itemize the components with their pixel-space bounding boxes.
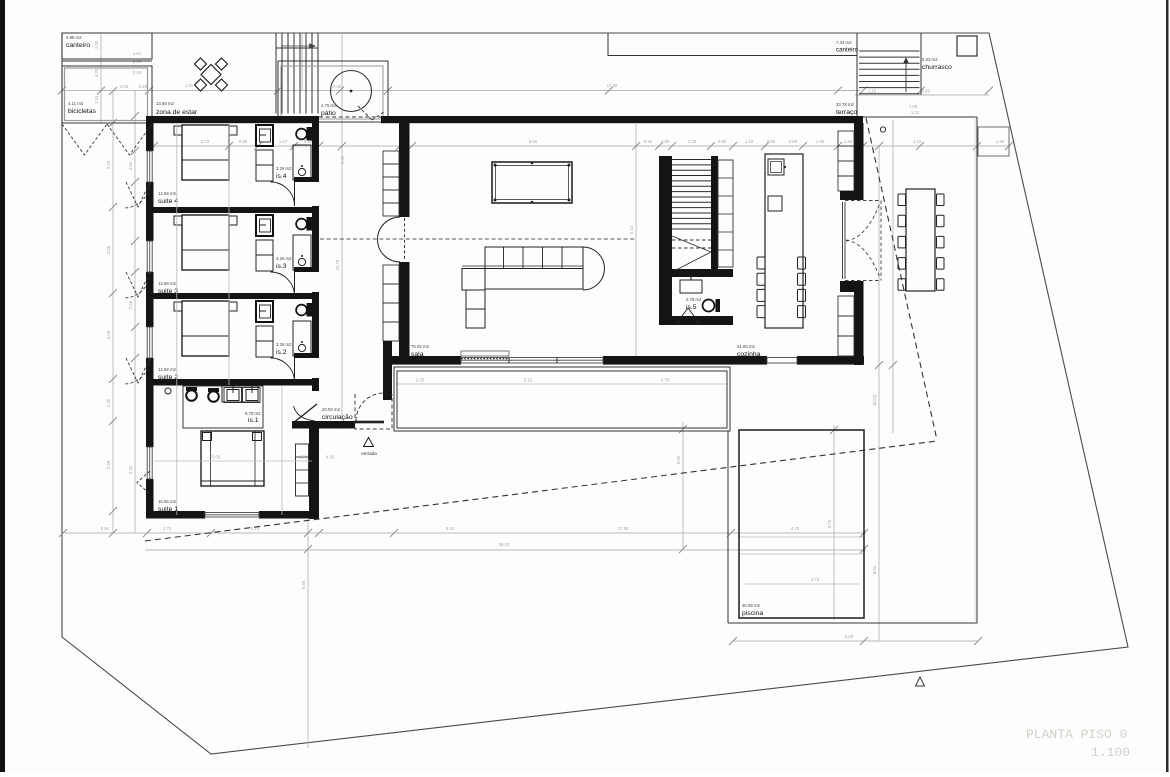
svg-text:2.05: 2.05 — [416, 378, 425, 383]
svg-text:is.2: is.2 — [276, 349, 287, 356]
svg-text:8.65: 8.65 — [529, 139, 538, 144]
svg-text:0.50: 0.50 — [299, 455, 308, 460]
svg-text:2.31: 2.31 — [340, 155, 345, 164]
svg-text:3.05: 3.05 — [106, 330, 111, 339]
svg-text:20.03 m2: 20.03 m2 — [322, 407, 341, 412]
svg-text:2.28: 2.28 — [106, 460, 111, 469]
svg-text:1.100: 1.100 — [1091, 745, 1130, 760]
svg-text:2.95: 2.95 — [128, 300, 133, 309]
svg-text:0.20: 0.20 — [139, 84, 148, 89]
svg-text:4.70: 4.70 — [661, 378, 670, 383]
svg-text:3.26 m2: 3.26 m2 — [276, 342, 292, 347]
svg-text:1.61: 1.61 — [133, 51, 142, 56]
svg-text:(8.04): (8.04) — [872, 394, 877, 406]
svg-text:8.75: 8.75 — [827, 519, 832, 528]
svg-text:2.72: 2.72 — [201, 139, 210, 144]
svg-text:3.30: 3.30 — [688, 139, 697, 144]
svg-text:0.42: 0.42 — [629, 225, 634, 234]
svg-text:75.02 m2: 75.02 m2 — [411, 344, 430, 349]
svg-text:0.60: 0.60 — [718, 139, 727, 144]
svg-text:sala: sala — [411, 351, 424, 358]
svg-text:1.20: 1.20 — [844, 139, 853, 144]
svg-text:suite 4: suite 4 — [158, 198, 178, 205]
svg-text:35.23: 35.23 — [499, 542, 510, 547]
svg-text:4.65: 4.65 — [128, 161, 133, 170]
svg-text:1.23: 1.23 — [868, 89, 877, 94]
svg-text:is.5: is.5 — [686, 304, 697, 311]
svg-text:13.55 m2: 13.55 m2 — [156, 101, 175, 106]
svg-text:1.30: 1.30 — [996, 139, 1005, 144]
svg-text:1.10: 1.10 — [745, 139, 754, 144]
svg-text:cozinha: cozinha — [737, 351, 761, 358]
svg-text:4.70: 4.70 — [791, 526, 800, 531]
svg-text:5.10: 5.10 — [446, 526, 455, 531]
svg-text:is.1: is.1 — [248, 417, 259, 424]
svg-text:0.60: 0.60 — [789, 139, 798, 144]
svg-text:5.12: 5.12 — [524, 378, 533, 383]
svg-text:canteiro: canteiro — [66, 42, 90, 49]
svg-text:churrasco: churrasco — [922, 64, 952, 71]
svg-text:1.00: 1.00 — [94, 40, 99, 49]
svg-text:5.05: 5.05 — [212, 455, 221, 460]
svg-text:2.83: 2.83 — [922, 89, 931, 94]
svg-text:3.20: 3.20 — [106, 160, 111, 169]
svg-text:PLANTA PISO 0: PLANTA PISO 0 — [1026, 727, 1127, 742]
svg-text:12.59 m2: 12.59 m2 — [158, 367, 177, 372]
svg-text:is.3: is.3 — [276, 263, 287, 270]
svg-text:6.50: 6.50 — [301, 580, 306, 589]
svg-text:8.00: 8.00 — [845, 634, 854, 639]
svg-text:5.94: 5.94 — [101, 526, 110, 531]
svg-text:31.80 m2: 31.80 m2 — [737, 344, 756, 349]
svg-text:0.35: 0.35 — [333, 84, 342, 89]
svg-text:3.05: 3.05 — [120, 84, 129, 89]
svg-text:2.70: 2.70 — [163, 526, 172, 531]
svg-text:30.69 m2: 30.69 m2 — [742, 603, 761, 608]
svg-text:1.47: 1.47 — [279, 139, 288, 144]
svg-text:0.45: 0.45 — [133, 70, 142, 75]
svg-text:4.30: 4.30 — [326, 455, 335, 460]
svg-text:3.26 m2: 3.26 m2 — [276, 256, 292, 261]
svg-text:bicicletas: bicicletas — [68, 108, 97, 115]
svg-text:1.90: 1.90 — [816, 139, 825, 144]
svg-text:1.30: 1.30 — [661, 139, 670, 144]
svg-text:pátio: pátio — [321, 110, 336, 117]
svg-text:3.26 m2: 3.26 m2 — [276, 166, 292, 171]
svg-text:17.00: 17.00 — [607, 83, 618, 88]
svg-text:8.04: 8.04 — [872, 565, 877, 574]
svg-text:8.79 m2: 8.79 m2 — [245, 411, 261, 416]
svg-text:suite 3: suite 3 — [158, 288, 178, 295]
svg-text:2.78 m2: 2.78 m2 — [686, 297, 702, 302]
svg-text:12.59 m2: 12.59 m2 — [158, 191, 177, 196]
svg-text:0.98: 0.98 — [239, 139, 248, 144]
svg-text:3.05: 3.05 — [106, 245, 111, 254]
svg-text:0.20: 0.20 — [644, 139, 653, 144]
svg-text:4.11 m2: 4.11 m2 — [68, 101, 84, 106]
svg-text:17.55: 17.55 — [618, 526, 629, 531]
svg-text:terraço: terraço — [836, 109, 857, 116]
svg-text:4.95 m2: 4.95 m2 — [66, 35, 82, 40]
svg-text:33.78 m2: 33.78 m2 — [836, 102, 855, 107]
svg-text:1.35: 1.35 — [106, 398, 111, 407]
svg-text:7.34 m2: 7.34 m2 — [836, 40, 852, 45]
svg-text:6.33 m2: 6.33 m2 — [922, 57, 938, 62]
svg-text:4.75 m2: 4.75 m2 — [321, 103, 337, 108]
svg-text:1.10: 1.10 — [94, 95, 99, 104]
svg-text:10.75: 10.75 — [335, 259, 340, 270]
svg-text:4.10: 4.10 — [913, 139, 922, 144]
svg-text:is.4: is.4 — [276, 173, 287, 180]
svg-text:canteiro: canteiro — [836, 47, 859, 54]
svg-text:12.59 m2: 12.59 m2 — [158, 281, 177, 286]
svg-text:0.80: 0.80 — [767, 139, 776, 144]
svg-text:4.70: 4.70 — [811, 577, 820, 582]
svg-text:zona de estar: zona de estar — [156, 109, 198, 116]
svg-text:7.05: 7.05 — [909, 104, 918, 109]
svg-text:1.41: 1.41 — [185, 83, 194, 88]
svg-text:2.20: 2.20 — [128, 465, 133, 474]
svg-text:0.20: 0.20 — [94, 68, 99, 77]
svg-text:circulação: circulação — [322, 414, 353, 421]
svg-text:piscina: piscina — [742, 610, 763, 617]
svg-text:6.00: 6.00 — [676, 455, 681, 464]
svg-text:suite 2: suite 2 — [158, 374, 178, 381]
svg-text:suite 1: suite 1 — [158, 506, 178, 513]
svg-text:16.56 m2: 16.56 m2 — [158, 499, 177, 504]
svg-text:entrada: entrada — [361, 451, 377, 456]
svg-text:1.02: 1.02 — [911, 110, 920, 115]
